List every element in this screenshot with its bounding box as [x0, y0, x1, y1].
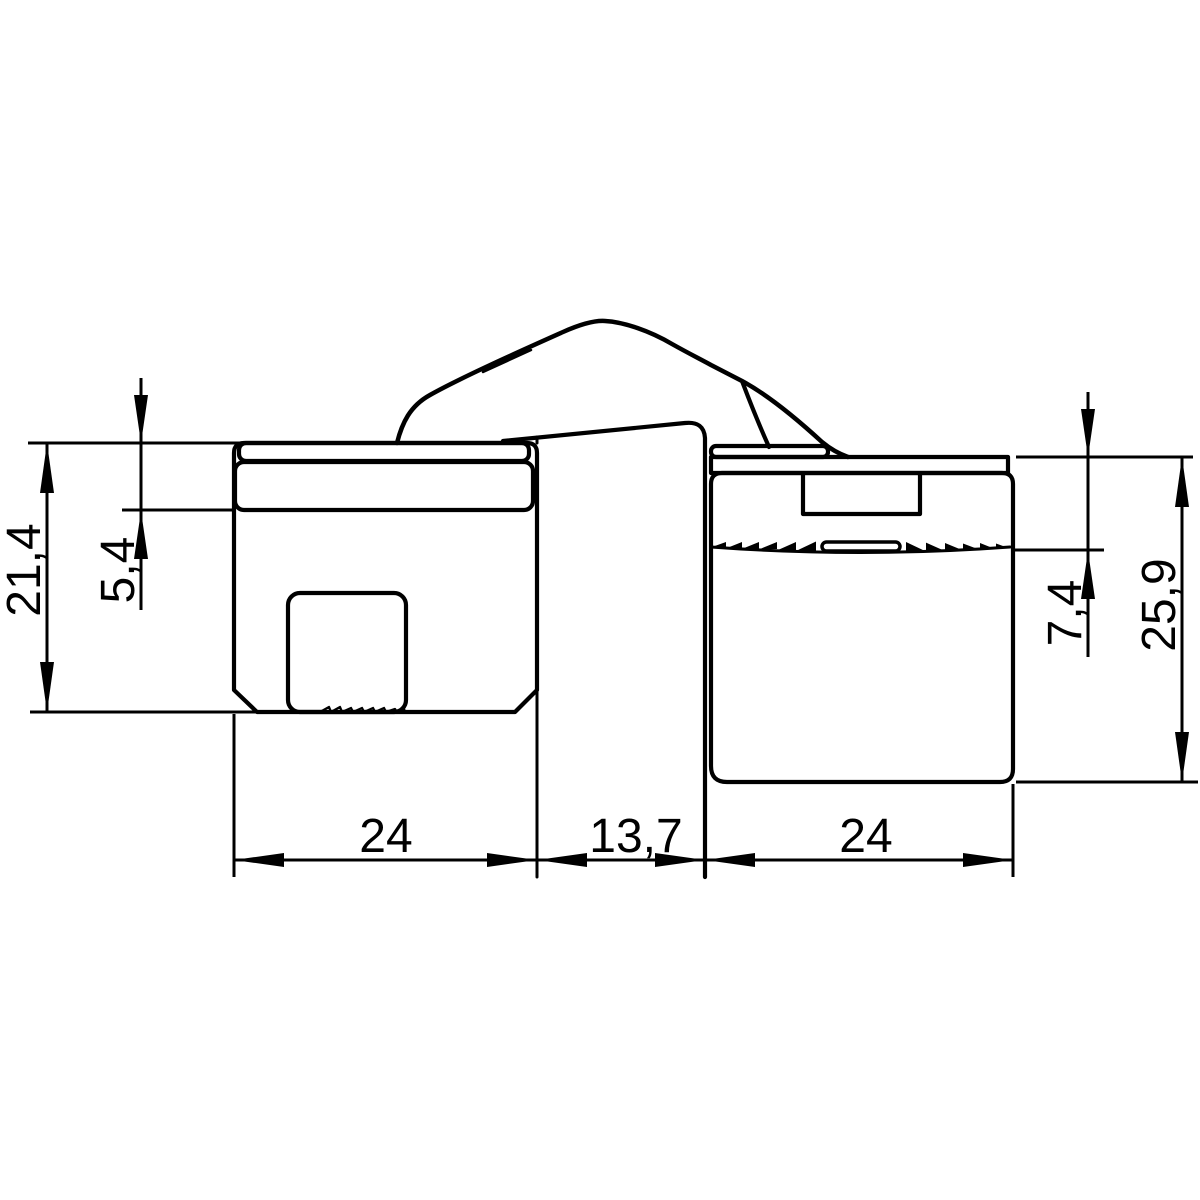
serration-adjuster-bar	[822, 542, 900, 551]
dim-label-left-height: 21,4	[0, 523, 51, 616]
right-leaf	[711, 446, 1013, 782]
dimension-left-plate-thickness: 5,4	[92, 378, 236, 610]
left-leaf	[234, 443, 537, 712]
right-leaf-recess	[803, 474, 920, 514]
left-leaf-slot	[288, 593, 406, 712]
hinge-technical-drawing: 21,4 5,4 24 13,7 24 7,4 25	[0, 0, 1200, 1200]
hinge-arm-ridge-line	[483, 350, 531, 372]
dimension-bottom-row: 24 13,7 24	[234, 714, 1013, 877]
left-leaf-top-plate	[239, 443, 529, 461]
dim-label-right-recess-depth: 7,4	[1039, 580, 1092, 647]
dim-label-left-width: 24	[359, 810, 412, 863]
hinge-arm-outline	[397, 321, 848, 457]
left-leaf-outline	[234, 443, 537, 712]
dim-label-left-plate-thickness: 5,4	[92, 537, 145, 604]
dim-label-right-width: 24	[839, 810, 892, 863]
right-leaf-outline	[711, 473, 1013, 782]
left-leaf-mid-plate	[235, 462, 533, 510]
dim-label-gap-width: 13,7	[589, 810, 682, 863]
right-leaf-top-plate	[711, 457, 1008, 473]
dim-label-right-height: 25,9	[1133, 558, 1186, 651]
drawing-svg: 21,4 5,4 24 13,7 24 7,4 25	[0, 0, 1200, 1200]
hinge-arm	[397, 321, 848, 457]
dimension-right-recess-depth: 7,4	[1014, 392, 1104, 657]
